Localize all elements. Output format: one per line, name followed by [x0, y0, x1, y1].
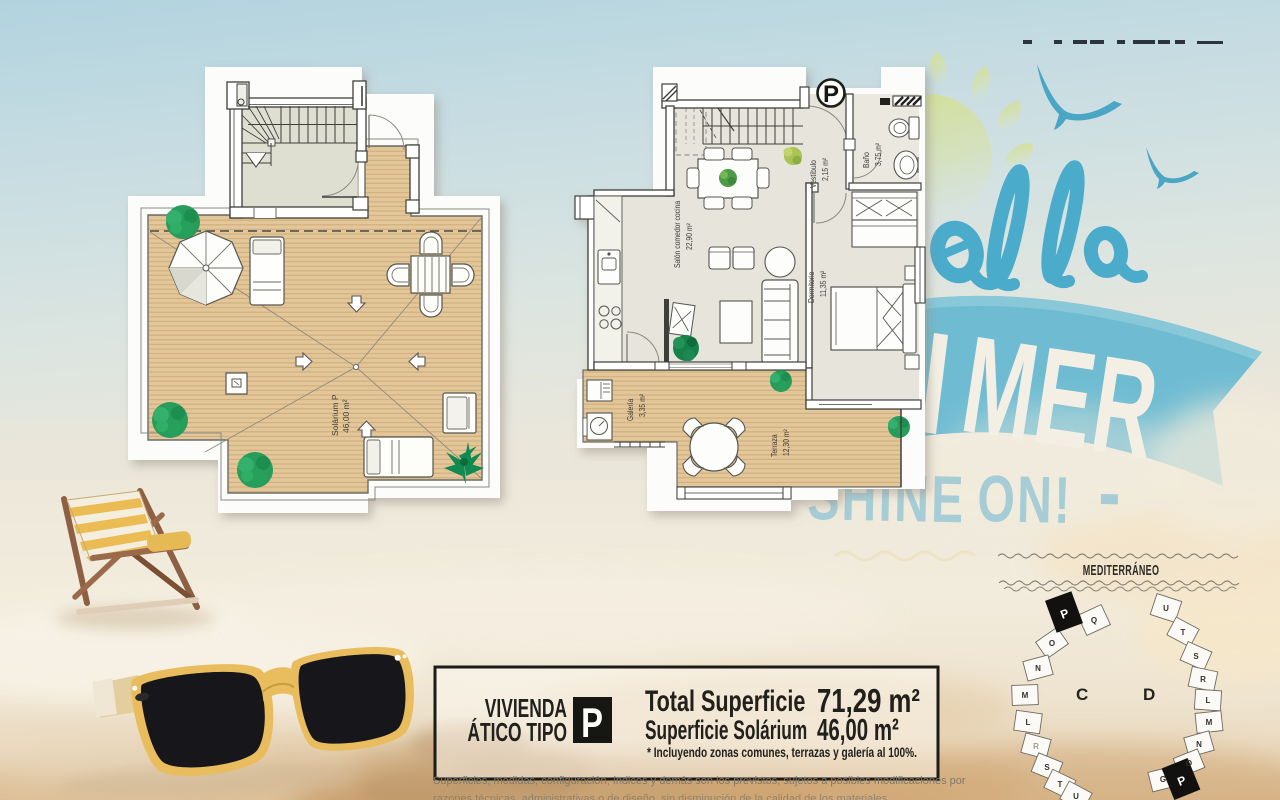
svg-text:T: T [1181, 628, 1186, 637]
svg-text:G: G [1160, 775, 1166, 784]
svg-text:3,35 m²: 3,35 m² [637, 394, 647, 417]
svg-text:razones técnicas, administrati: razones técnicas, administrativas o de d… [433, 793, 890, 800]
svg-text:Superficies, medidas, configur: Superficies, medidas, configuración, índ… [433, 775, 966, 787]
svg-text:S: S [1193, 652, 1199, 661]
svg-text:Salón comedor cocina: Salón comedor cocina [672, 200, 682, 268]
svg-text:O: O [1049, 639, 1055, 648]
svg-text:Q: Q [1091, 616, 1097, 625]
svg-text:P: P [581, 699, 603, 746]
svg-text:M: M [1206, 718, 1213, 727]
svg-text:R: R [1200, 675, 1206, 684]
svg-text:U: U [1073, 792, 1079, 800]
svg-text:ON!: ON! [977, 463, 1073, 538]
svg-text:P: P [823, 81, 839, 108]
svg-text:U: U [1163, 604, 1169, 613]
svg-text:Vestíbulo: Vestíbulo [808, 160, 818, 188]
svg-text:T: T [1058, 780, 1063, 789]
svg-text:Solárium P: Solárium P [330, 394, 340, 436]
svg-text:Total Superficie: Total Superficie [645, 683, 805, 717]
svg-text:ÁTICO TIPO: ÁTICO TIPO [467, 718, 567, 747]
svg-text:N: N [1035, 664, 1041, 673]
svg-text:Dormitorio: Dormitorio [806, 272, 816, 303]
svg-text:Superficie Solárium: Superficie Solárium [645, 714, 807, 745]
svg-text:46,00 m²: 46,00 m² [817, 712, 899, 747]
svg-text:22,90 m²: 22,90 m² [684, 223, 694, 250]
svg-text:L: L [1206, 696, 1211, 705]
svg-text:12,30 m²: 12,30 m² [781, 429, 791, 456]
svg-text:L: L [1026, 718, 1031, 727]
svg-text:* Incluyendo zonas comunes, te: * Incluyendo zonas comunes, terrazas y g… [647, 745, 917, 761]
svg-text:Baño: Baño [861, 152, 871, 168]
svg-text:3,75 m²: 3,75 m² [873, 143, 883, 166]
svg-text:O: O [1186, 759, 1192, 768]
svg-text:11,35 m²: 11,35 m² [818, 270, 828, 297]
svg-text:D: D [1143, 685, 1155, 704]
svg-text:2,15 m²: 2,15 m² [820, 158, 830, 181]
svg-text:M: M [1022, 691, 1029, 700]
svg-text:MEDITERRÁNEO: MEDITERRÁNEO [1083, 561, 1160, 579]
svg-text:N: N [1196, 740, 1202, 749]
svg-text:MER: MER [954, 308, 1169, 489]
svg-text:C: C [1076, 685, 1088, 704]
svg-text:S: S [1044, 763, 1050, 772]
svg-text:46,00 m²: 46,00 m² [341, 399, 351, 433]
svg-text:Terraza: Terraza [769, 434, 779, 457]
svg-text:Galería: Galería [625, 398, 635, 421]
svg-text:R: R [1033, 742, 1039, 751]
